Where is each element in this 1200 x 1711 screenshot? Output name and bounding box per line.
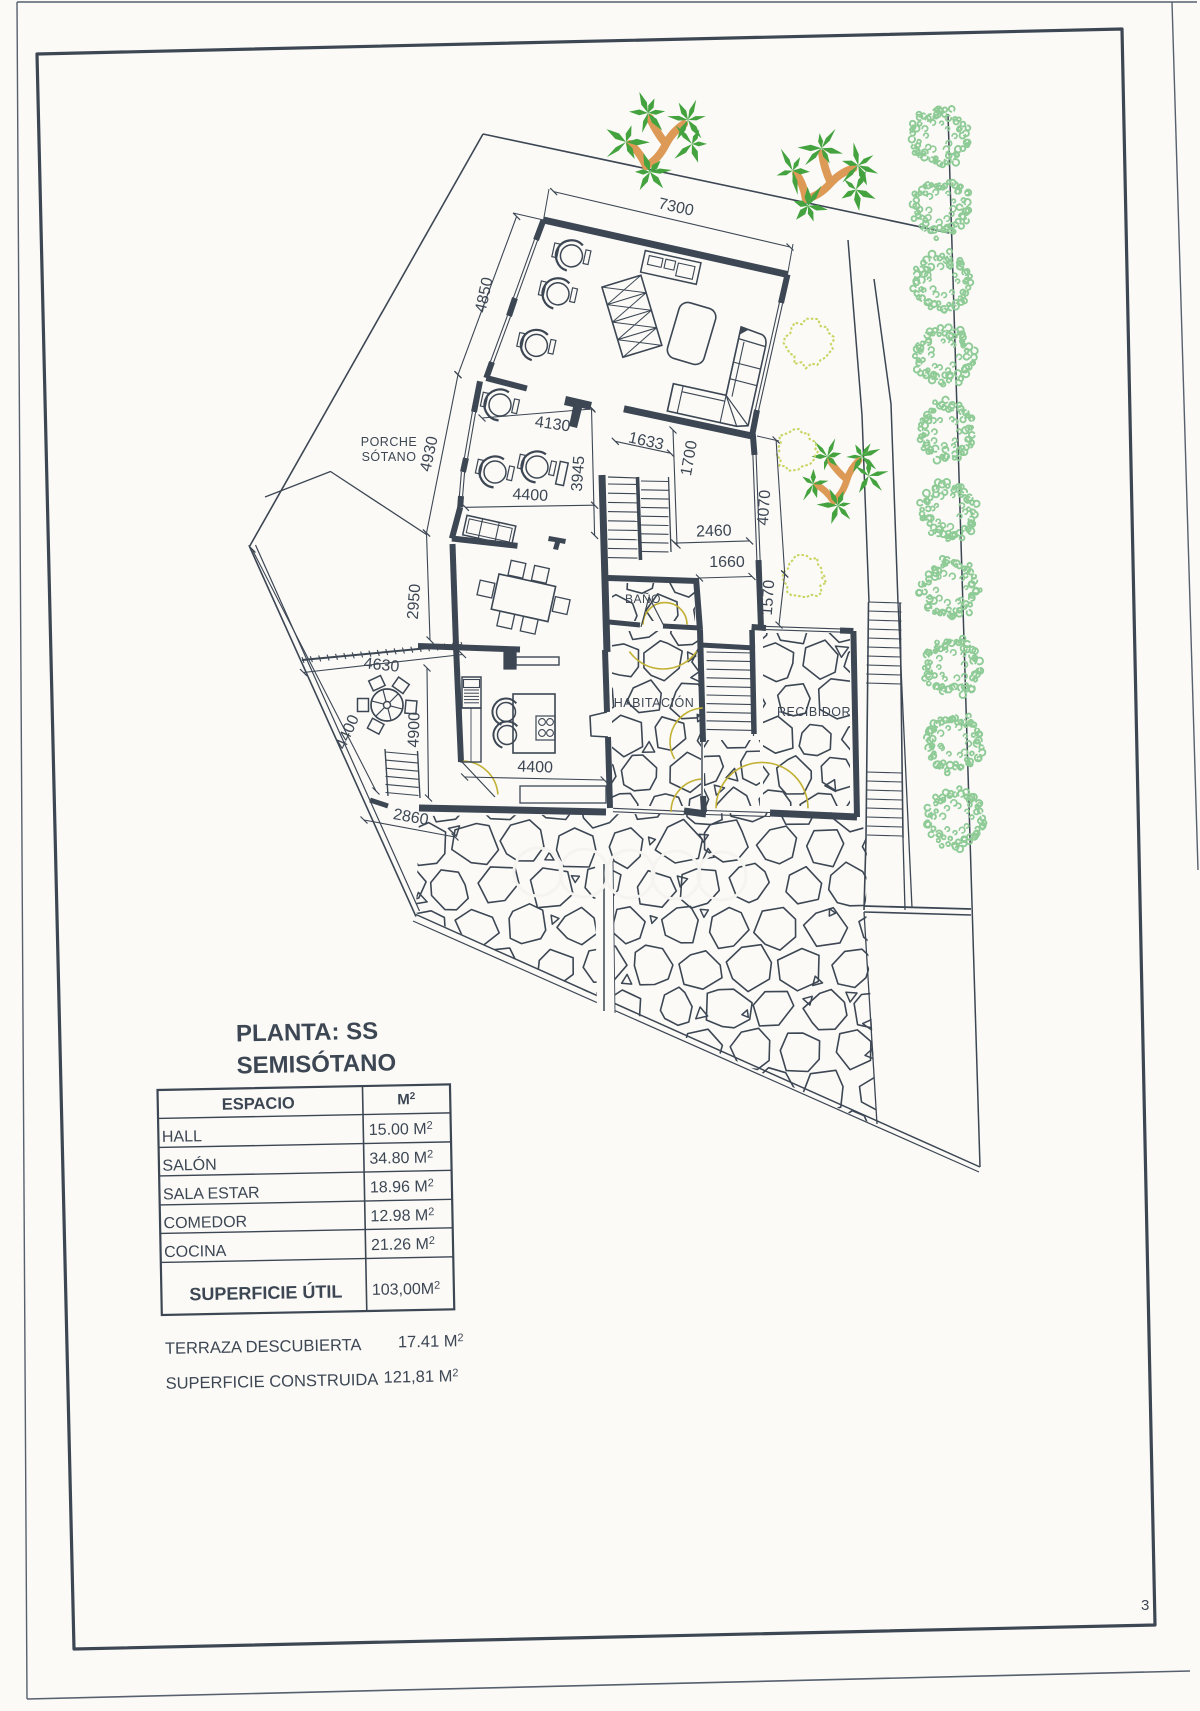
svg-text:PORCHE: PORCHE — [361, 435, 417, 449]
svg-text:TERRAZA DESCUBIERTA: TERRAZA DESCUBIERTA — [165, 1336, 362, 1358]
svg-text:103,00M2: 103,00M2 — [372, 1280, 441, 1299]
svg-text:SÓTANO: SÓTANO — [362, 449, 417, 464]
svg-text:4400: 4400 — [517, 758, 553, 776]
svg-text:BAÑO: BAÑO — [625, 592, 661, 606]
svg-text:HABITACIÓN: HABITACIÓN — [614, 695, 694, 710]
svg-text:121,81 M2: 121,81 M2 — [383, 1367, 458, 1386]
svg-text:4400: 4400 — [512, 486, 549, 505]
svg-text:SALÓN: SALÓN — [162, 1155, 217, 1175]
svg-text:PLANTA: SS: PLANTA: SS — [236, 1018, 379, 1048]
svg-text:SALA ESTAR: SALA ESTAR — [163, 1185, 260, 1204]
svg-text:4900: 4900 — [405, 712, 423, 748]
svg-text:2950: 2950 — [405, 583, 424, 620]
svg-text:ESPACIO: ESPACIO — [222, 1094, 296, 1113]
svg-text:17.41 M2: 17.41 M2 — [398, 1332, 464, 1351]
svg-text:RECIBIDOR: RECIBIDOR — [777, 705, 851, 719]
svg-text:COCINA: COCINA — [164, 1243, 227, 1261]
svg-text:2460: 2460 — [696, 522, 732, 540]
svg-text:15.00 M2: 15.00 M2 — [369, 1120, 433, 1139]
svg-text:34.80 M2: 34.80 M2 — [369, 1149, 433, 1168]
svg-text:12.98 M2: 12.98 M2 — [370, 1206, 434, 1225]
svg-text:18.96 M2: 18.96 M2 — [370, 1177, 434, 1196]
svg-text:4070: 4070 — [755, 489, 774, 526]
svg-text:HALL: HALL — [162, 1128, 202, 1146]
svg-text:SEMISÓTANO: SEMISÓTANO — [236, 1048, 396, 1079]
svg-text:1660: 1660 — [709, 554, 745, 571]
svg-text:21.26 M2: 21.26 M2 — [371, 1235, 435, 1254]
svg-text:COMEDOR: COMEDOR — [163, 1214, 247, 1233]
svg-text:3: 3 — [1141, 1597, 1149, 1614]
svg-text:3945: 3945 — [569, 455, 588, 492]
svg-text:1570: 1570 — [759, 579, 778, 616]
svg-text:SUPERFICIE ÚTIL: SUPERFICIE ÚTIL — [189, 1280, 342, 1304]
